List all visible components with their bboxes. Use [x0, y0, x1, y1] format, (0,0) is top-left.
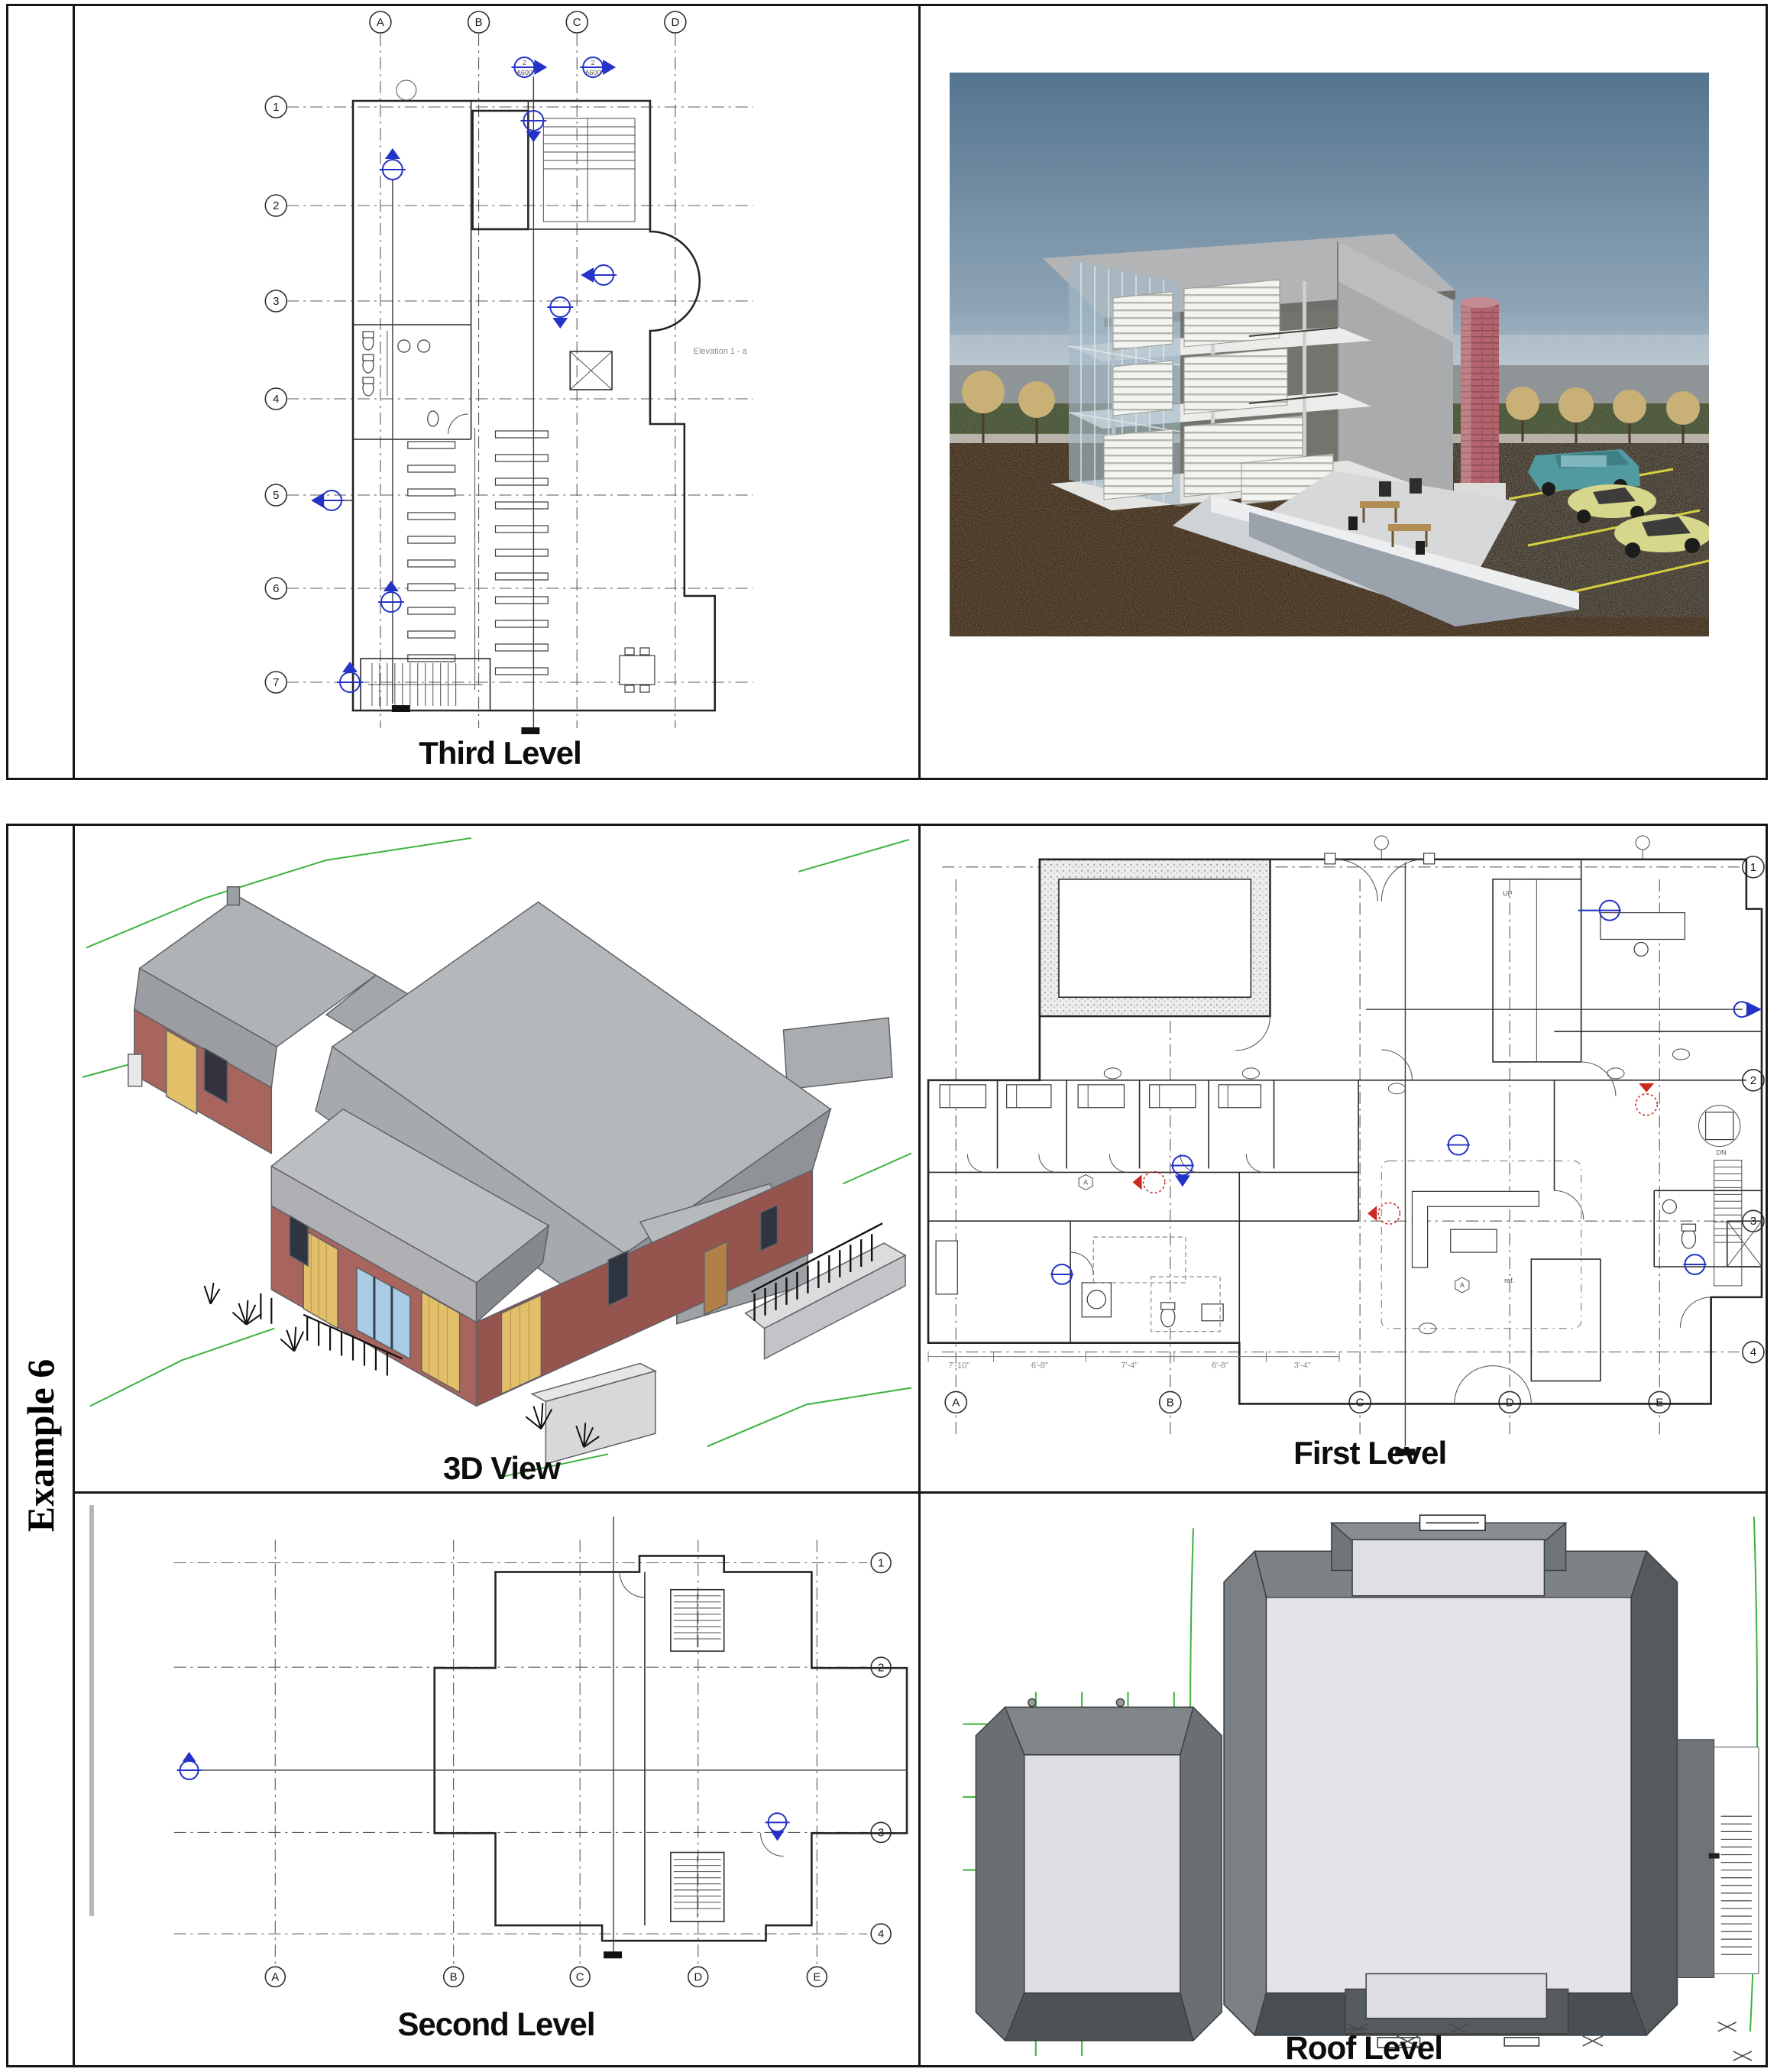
- panel-caption: Third Level: [419, 735, 581, 771]
- panel-rendering: [921, 6, 1766, 778]
- grid-row-label: 1: [1750, 861, 1756, 874]
- grid-col-label: A: [952, 1396, 960, 1409]
- stair-label: UP: [1503, 890, 1513, 898]
- grid-col-label: D: [671, 16, 679, 29]
- grid-row-label: 1: [878, 1556, 884, 1569]
- grid-col-label: D: [694, 1970, 702, 1983]
- house-3d-svg: 3D View: [75, 826, 918, 1491]
- elevator: [570, 351, 612, 390]
- svg-text:7'-10": 7'-10": [948, 1361, 969, 1371]
- entry-door: [704, 1242, 727, 1315]
- stairs-lower: ref.: [1504, 1259, 1601, 1381]
- panel-caption: First Level: [1293, 1435, 1446, 1471]
- svg-text:2: 2: [591, 59, 595, 66]
- grid: A B C D E 1 2 3 4: [174, 1539, 891, 1986]
- callout-marker: [1050, 1264, 1073, 1284]
- camera-marker: [1133, 1171, 1165, 1193]
- bedroom-furniture: [936, 1085, 1264, 1294]
- svg-text:A: A: [1083, 1178, 1088, 1186]
- stair-label: DN: [1717, 1149, 1727, 1157]
- edge-artifact: [89, 1505, 94, 1916]
- section-marker: [380, 148, 406, 180]
- house-model: [128, 887, 905, 1464]
- grid-col-label: C: [1356, 1396, 1364, 1409]
- section-lines: [189, 1517, 907, 1958]
- building-outline: [928, 860, 1762, 1404]
- library-shelving: [408, 428, 549, 690]
- left-wing-roof: [976, 1698, 1222, 2040]
- grid-col-label: A: [377, 16, 384, 29]
- living-room-furniture: [1381, 1161, 1581, 1328]
- svg-text:2: 2: [523, 59, 526, 66]
- stairs-bottom: [361, 659, 490, 711]
- entry-doors: [1325, 853, 1531, 1404]
- stairs-upper: UP: [1493, 879, 1581, 1062]
- building-section-render: [921, 6, 1766, 778]
- roof-level-svg: Roof Level: [921, 1494, 1766, 2066]
- grid-col-label: B: [1167, 1396, 1174, 1409]
- building-structure: [1043, 234, 1506, 516]
- section-marker: [378, 581, 404, 612]
- grid-col-label: E: [813, 1970, 821, 1983]
- camera-marker: [1636, 1083, 1657, 1115]
- dimension-string: [928, 1352, 1339, 1362]
- svg-text:A600: A600: [516, 69, 532, 76]
- restroom-fixtures: [363, 331, 468, 434]
- section-marker: [581, 265, 617, 285]
- stairs-lower: [671, 1853, 724, 1921]
- grid-row-label: 4: [878, 1928, 884, 1941]
- panel-caption: 3D View: [443, 1450, 561, 1486]
- grid-col-label: C: [573, 16, 581, 29]
- grid-col-label: A: [271, 1970, 279, 1983]
- grid-col-label: B: [450, 1970, 458, 1983]
- section-marker: 2 A600: [580, 57, 616, 77]
- dining-area: [1601, 913, 1740, 1147]
- second-level-plan-svg: A B C D E 1 2 3 4: [75, 1494, 918, 2066]
- panel-second-level: A B C D E 1 2 3 4: [75, 1494, 921, 2066]
- grid-row-label: 1: [273, 101, 279, 114]
- desk: [1601, 913, 1685, 940]
- panel-3d-view: 3D View: [75, 826, 921, 1491]
- top-table-label-column: [8, 6, 75, 778]
- svg-text:3'-4": 3'-4": [1294, 1361, 1311, 1371]
- grid-row-label: 5: [273, 489, 279, 502]
- svg-text:7'-4": 7'-4": [1121, 1361, 1138, 1371]
- grid-col-label: C: [576, 1970, 584, 1983]
- elevation-marker: [177, 1752, 202, 1779]
- grid-col-label: D: [1506, 1396, 1514, 1409]
- grid-row-label: 7: [273, 676, 279, 689]
- first-level-plan-svg: A B C D E 1 2 3 4: [921, 826, 1766, 1491]
- callout-marker: [1171, 1156, 1194, 1187]
- figure-page: A B C D 1 2 3 4 5 6 7: [0, 0, 1777, 2072]
- fridge-label: ref.: [1504, 1277, 1514, 1284]
- grid-row-label: 3: [273, 295, 279, 308]
- top-dormer: [1332, 1515, 1566, 1596]
- grid-row-label: 6: [273, 582, 279, 595]
- svg-text:6'-8": 6'-8": [1031, 1361, 1048, 1371]
- panel-roof-level: Roof Level: [921, 1494, 1766, 2066]
- svg-text:A: A: [1460, 1281, 1465, 1289]
- grid-row-label: 2: [273, 199, 279, 212]
- svg-text:A600: A600: [585, 69, 601, 76]
- main-roof: [1224, 1551, 1677, 2035]
- grid-row-label: 4: [273, 393, 279, 406]
- grid-col-label: E: [1656, 1396, 1663, 1409]
- panel-caption: Second Level: [397, 2006, 594, 2042]
- section-marker: [337, 662, 363, 692]
- grid-col-label: B: [475, 16, 483, 29]
- panel-caption: Roof Level: [1285, 2030, 1442, 2066]
- bottom-table: Example 6: [6, 824, 1768, 2067]
- top-table: A B C D 1 2 3 4 5 6 7: [6, 4, 1768, 780]
- stairs-upper: [671, 1590, 724, 1651]
- elevation-note: Elevation 1 - a: [694, 347, 748, 356]
- example-label: Example 6: [18, 1359, 63, 1532]
- callout-marker: [1683, 1255, 1706, 1274]
- table-and-chairs: [620, 648, 655, 692]
- section-marker: [547, 297, 573, 329]
- example-label-column: Example 6: [8, 826, 75, 2065]
- callout-marker: [1447, 1135, 1470, 1155]
- grid-row-label: 4: [1750, 1346, 1756, 1359]
- panel-first-level: A B C D E 1 2 3 4: [921, 826, 1766, 1491]
- elevation-marker: [766, 1813, 790, 1841]
- third-level-plan-svg: A B C D 1 2 3 4 5 6 7: [75, 6, 918, 778]
- panel-third-level: A B C D 1 2 3 4 5 6 7: [75, 6, 921, 778]
- right-balcony: [1677, 1740, 1759, 1978]
- section-marker: 2 A600: [511, 57, 547, 77]
- svg-text:6'-8": 6'-8": [1212, 1361, 1228, 1371]
- section-marker: [311, 490, 345, 510]
- grid-row-label: 2: [1750, 1074, 1756, 1087]
